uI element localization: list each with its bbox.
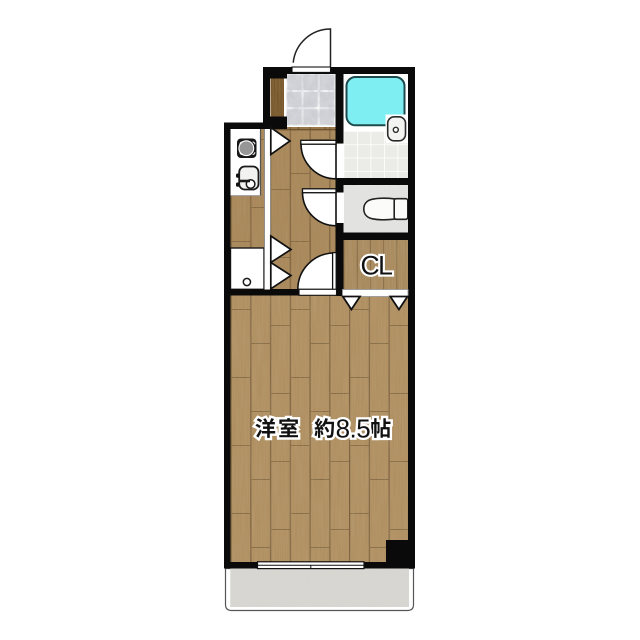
svg-text:8.5: 8.5 [336,414,371,444]
svg-text:CL: CL [361,251,393,281]
